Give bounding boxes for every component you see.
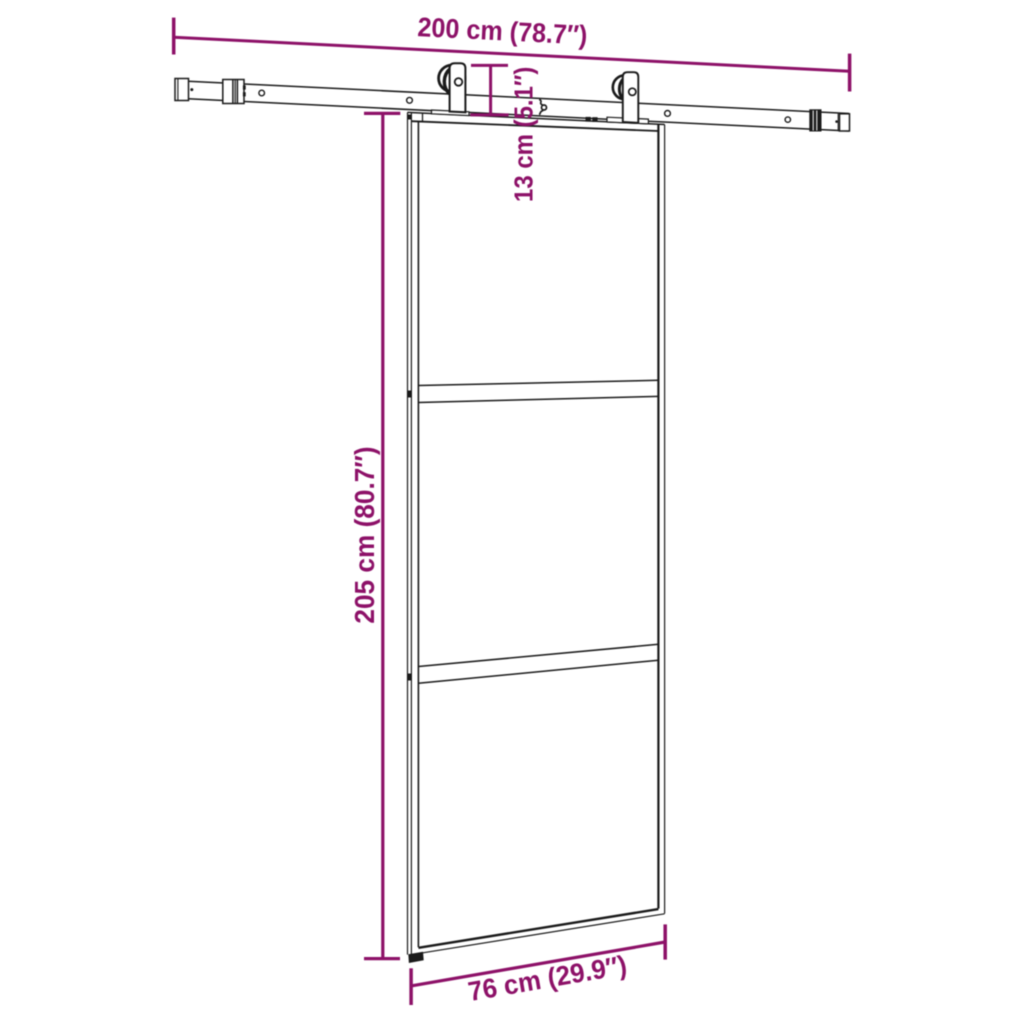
svg-text:13 cm (5.1″): 13 cm (5.1″) xyxy=(511,67,539,202)
svg-text:205 cm (80.7″): 205 cm (80.7″) xyxy=(349,446,380,623)
